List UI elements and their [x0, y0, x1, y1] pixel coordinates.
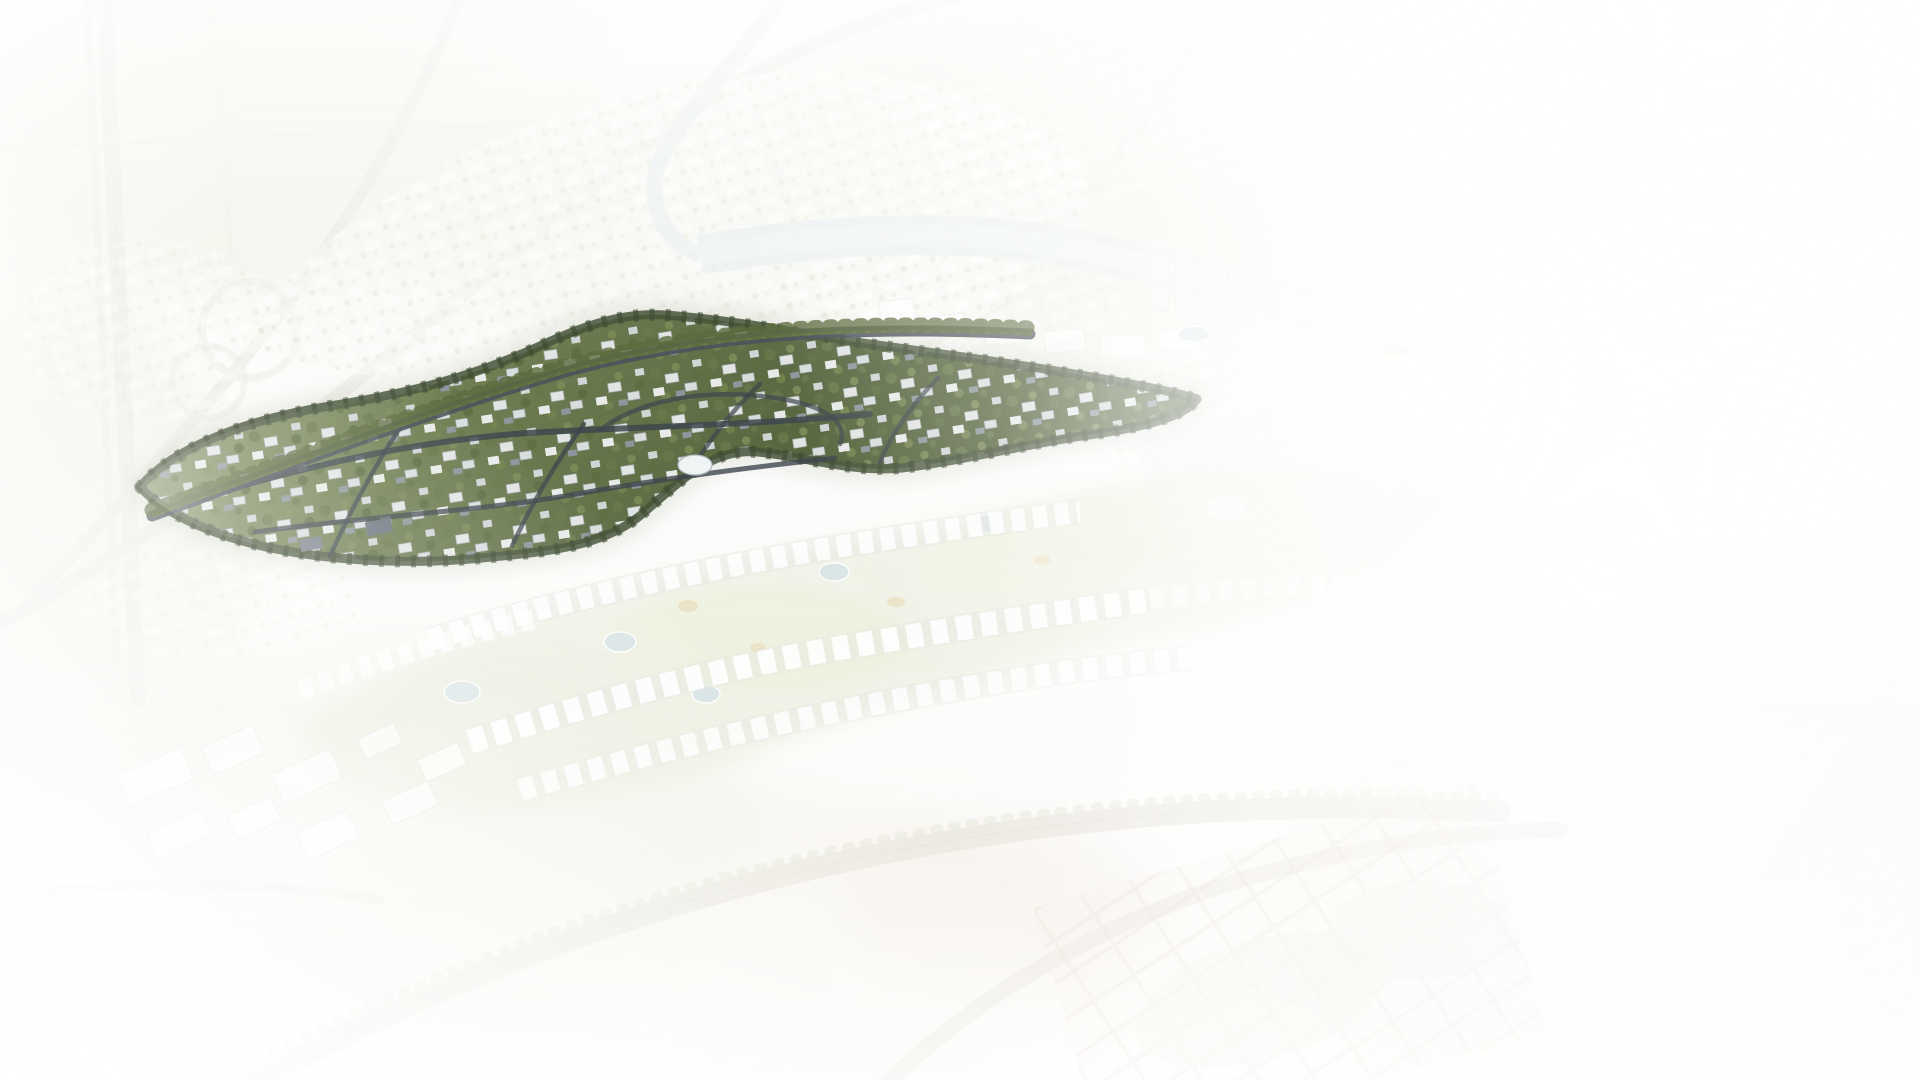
- aerial-render-canvas: [0, 0, 1920, 1080]
- aerial-masterplan-hero: [0, 0, 1920, 1080]
- white-haze-vignette: [0, 0, 1920, 1080]
